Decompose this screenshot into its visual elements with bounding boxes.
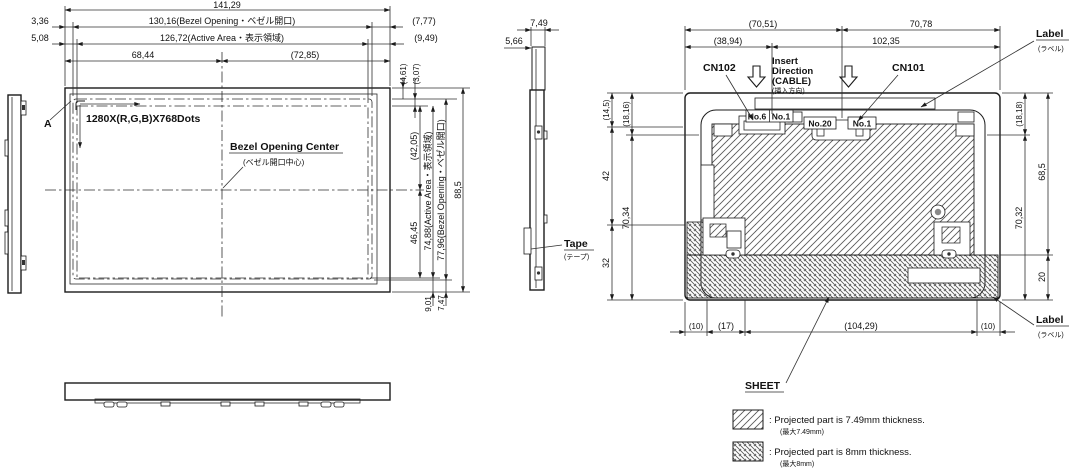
front-view: 141,29 130,16(Bezel Opening・ベゼル開口) 126,7… (31, 0, 470, 318)
bezel-opening-center-label: Bezel Opening Center (230, 141, 339, 153)
dim-back-left-2: 42 (601, 171, 611, 181)
dim-back-bottom-2: (17) (718, 321, 734, 331)
active-area-outline (77, 106, 368, 278)
pin-no1a-label: No.1 (772, 112, 791, 122)
resolution-label: 1280X(R,G,B)X768Dots (86, 113, 201, 125)
label-top-leader (921, 41, 1034, 107)
dim-total-height: 88,5 (453, 181, 463, 199)
dim-side-offset: 5,66 (505, 36, 523, 46)
legend-8mm-text: : Projected part is 8mm thickness. (769, 447, 912, 458)
left-side-view (5, 95, 26, 293)
lcd-panel-outline-drawing: 141,29 130,16(Bezel Opening・ベゼル開口) 126,7… (0, 0, 1080, 468)
side-view: Tape (テープ) 7,49 5,66 (504, 18, 594, 290)
drawing-canvas: 141,29 130,16(Bezel Opening・ベゼル開口) 126,7… (0, 0, 1080, 468)
dim-back-top-left: (70,51) (749, 19, 778, 29)
dim-bezel-width: 130,16(Bezel Opening・ベゼル開口) (149, 15, 296, 26)
sheet-label: SHEET (745, 380, 781, 392)
legend-749-text: : Projected part is 7.49mm thickness. (769, 415, 925, 426)
tape-label: Tape (564, 238, 588, 250)
pin-no1b-label: No.1 (853, 119, 872, 129)
back-view: No.6 No.1 No.20 No.1 CN102 CN101 Insert … (601, 19, 1069, 392)
dim-active-height: 74,88(Active Area・表示領域) (422, 131, 433, 250)
dim-bezel-offset-bottom: 7,47 (437, 295, 446, 311)
dim-active-offset-left: 5,08 (31, 33, 49, 43)
insert-direction-jp: (挿入方向) (772, 86, 805, 95)
label-bottom-callout: Label (1036, 314, 1064, 326)
dim-bezel-offset-left: 3,36 (31, 16, 49, 26)
dim-back-right-2: 20 (1037, 272, 1047, 282)
cn101-label: CN101 (892, 62, 925, 74)
dim-back-right-inner-1: (18,18) (1015, 101, 1024, 127)
dim-center-right: (72,85) (291, 50, 320, 60)
bezel-opening-outline (73, 99, 372, 279)
dim-back-top-left2: (38,94) (714, 36, 743, 46)
dim-back-left-1: (14,5) (602, 99, 611, 120)
legend-hatch-749-swatch (733, 410, 763, 429)
label-top-callout: Label (1036, 28, 1064, 40)
legend-749-text-jp: (最大7.49mm) (780, 427, 824, 436)
dim-active-offset-top: (3,07) (412, 63, 421, 84)
sheet-leader (786, 297, 829, 383)
bezel-opening-center-label-jp: (ベゼル開口中心) (243, 157, 305, 167)
dim-back-bottom-3: (104,29) (844, 321, 878, 331)
dim-bezel-offset-right: (7,77) (412, 16, 436, 26)
dim-back-right-1: 68,5 (1037, 163, 1047, 181)
dim-back-bottom-4: (10) (981, 322, 996, 331)
bottom-view (65, 383, 390, 407)
cn102-label: CN102 (703, 62, 736, 74)
dim-center-lower: 46,45 (409, 222, 419, 245)
insert-direction-arrow-left (748, 66, 765, 87)
hatch-legend: : Projected part is 7.49mm thickness. (最… (733, 410, 925, 468)
insert-direction-line3: (CABLE) (772, 76, 811, 87)
dim-bezel-offset-top: (4,61) (399, 63, 408, 84)
dim-bezel-height: 77,96(Bezel Opening・ベゼル開口) (435, 119, 446, 261)
dim-back-bottom-1: (10) (689, 322, 704, 331)
legend-hatch-8mm-swatch (733, 442, 763, 461)
cn102-leader (726, 75, 753, 120)
tape-label-jp: (テープ) (564, 253, 589, 261)
insert-direction-arrow-right (840, 66, 857, 87)
dim-active-offset-right: (9,49) (414, 33, 438, 43)
label-strip (755, 98, 935, 109)
tape-tab (524, 228, 531, 254)
legend-8mm-text-jp: (最大8mm) (780, 459, 814, 468)
dim-back-left-inner-1: (18,16) (622, 101, 631, 127)
pin-no20-label: No.20 (808, 119, 831, 129)
dim-side-thickness: 7,49 (530, 18, 548, 28)
dim-total-width: 141,29 (213, 0, 241, 10)
dim-back-top-right2: 102,35 (872, 36, 900, 46)
dim-back-left-3: 32 (601, 258, 611, 268)
bezel-center-leader (223, 167, 243, 188)
dim-back-left-inner-2: 70,34 (621, 207, 631, 230)
label-top-callout-jp: (ラベル) (1038, 45, 1064, 53)
dim-back-right-inner-2: 70,32 (1014, 207, 1024, 230)
dim-center-left: 68,44 (132, 50, 155, 60)
dim-center-upper: (42,05) (409, 132, 419, 161)
label-bottom-leader (993, 297, 1034, 325)
dim-back-top-right: 70,78 (910, 19, 933, 29)
label-bottom-callout-jp: (ラベル) (1038, 331, 1064, 339)
dim-active-width: 126,72(Active Area・表示領域) (160, 32, 284, 43)
section-a-leader (50, 101, 71, 120)
dim-active-offset-bottom: 9,01 (424, 296, 433, 312)
